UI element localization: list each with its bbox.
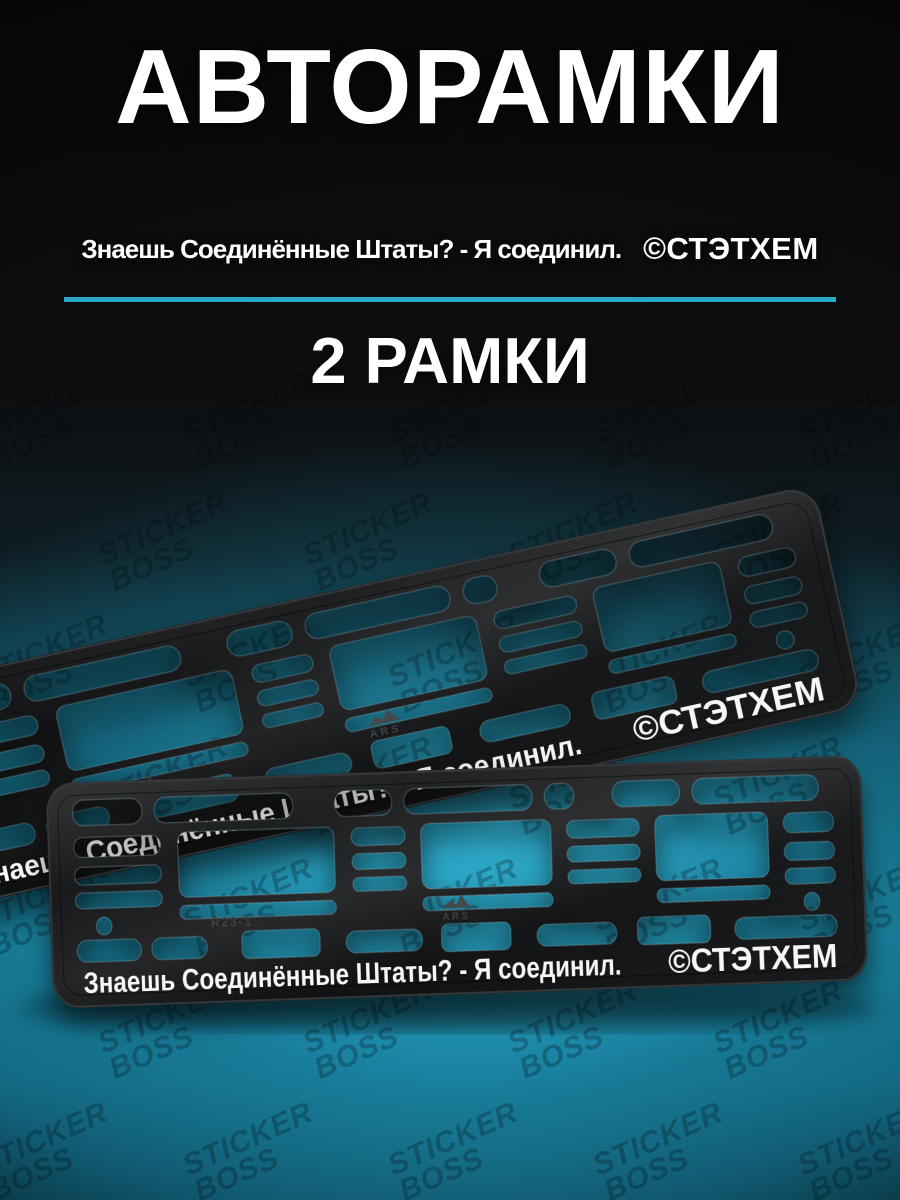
divider-line [64, 297, 836, 302]
page-title: АВТОРАМКИ [0, 34, 900, 140]
frame-print-brand: ©СТЭТХЕМ [668, 936, 838, 980]
quote-row: Знаешь Соединённые Штаты? - Я соединил. … [0, 231, 900, 267]
license-frame-front: R23-1 ARS Знаешь Соединённые Штаты? - Я … [45, 755, 868, 1009]
watermark-text: STICKER BOSS [179, 1104, 316, 1200]
product-card: STICKER BOSSSTICKER BOSSSTICKER BOSSSTIC… [0, 0, 900, 1200]
watermark-text: STICKER BOSS [0, 1104, 111, 1200]
watermark-text: STICKER BOSS [384, 1104, 521, 1200]
quote-text: Знаешь Соединённые Штаты? - Я соединил. [81, 234, 621, 265]
product-photo: R23-1 ARS Знаешь Соединённые Штаты? - Я … [0, 430, 900, 1050]
count-label: 2 РАМКИ [0, 328, 900, 393]
watermark-text: STICKER BOSS [589, 1104, 726, 1200]
brand-text: ©СТЭТХЕМ [643, 231, 819, 267]
mold-code: R23-1 [211, 913, 253, 930]
svg-text:ARS: ARS [442, 911, 470, 924]
watermark-text: STICKER BOSS [794, 1104, 900, 1200]
